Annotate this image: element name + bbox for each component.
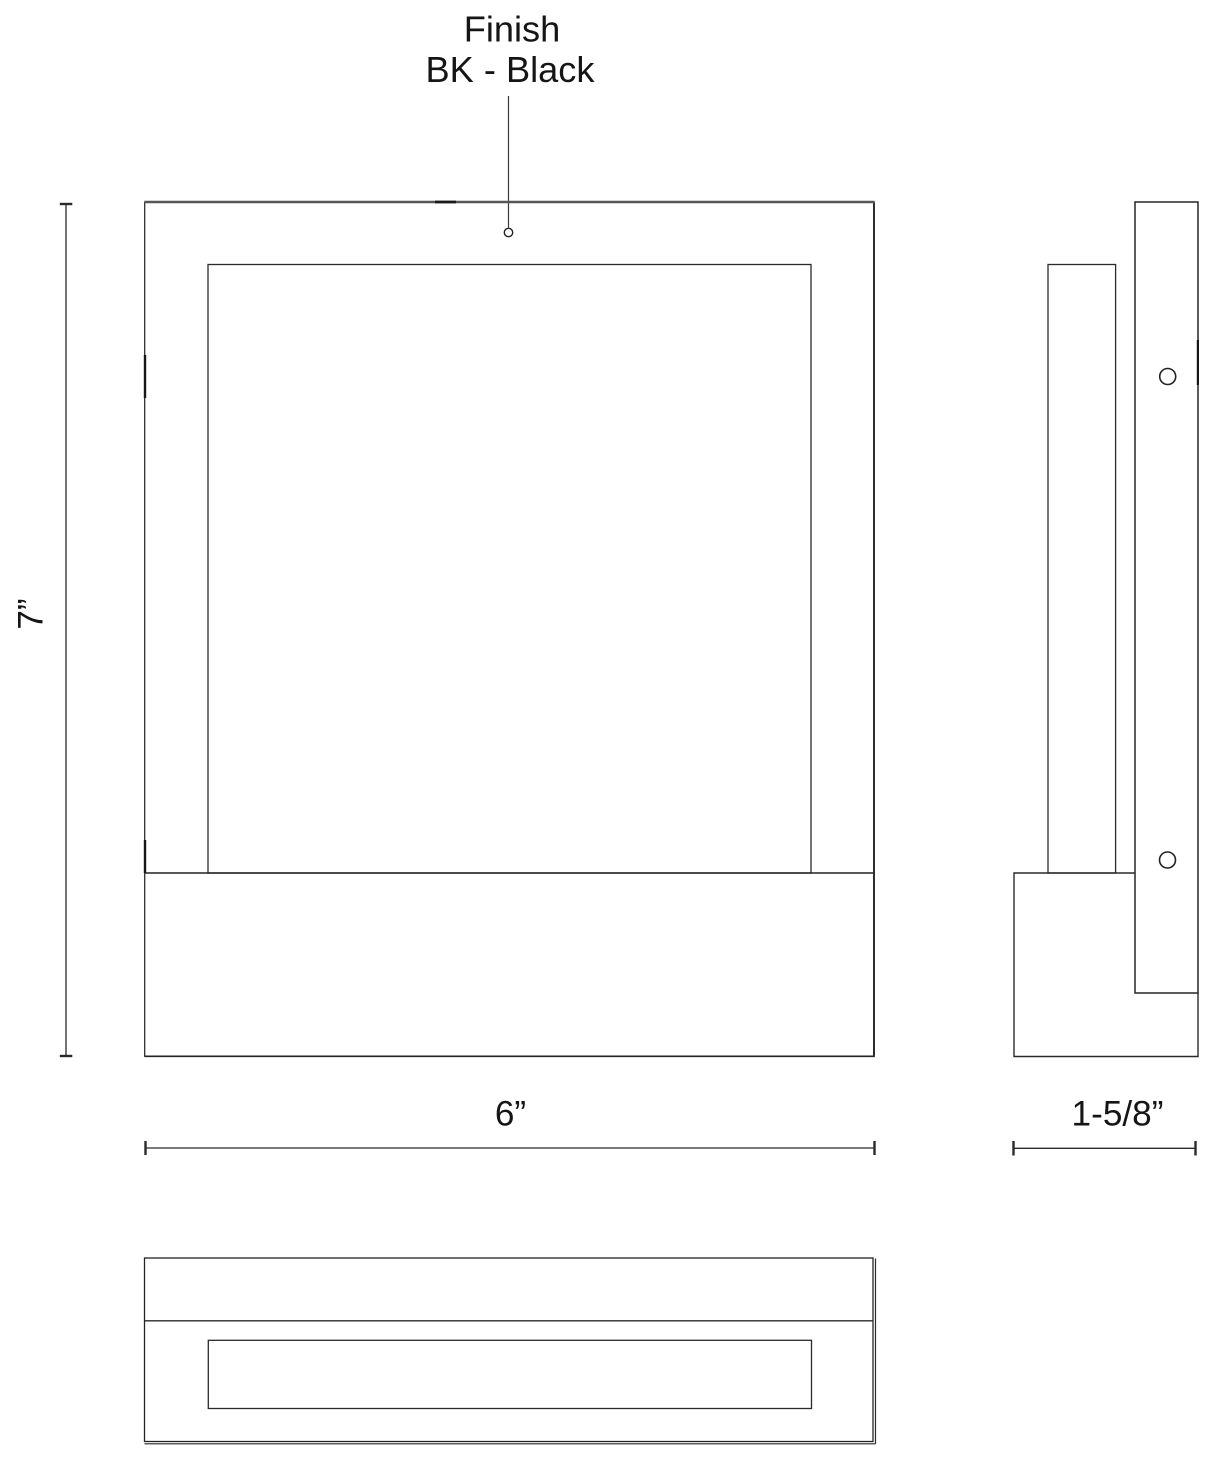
svg-text:1-5/8”: 1-5/8” (1072, 1095, 1164, 1134)
svg-text:6”: 6” (495, 1094, 526, 1133)
svg-text:BK - Black: BK - Black (426, 49, 596, 90)
svg-text:7”: 7” (11, 598, 50, 629)
svg-text:Finish: Finish (464, 8, 561, 49)
